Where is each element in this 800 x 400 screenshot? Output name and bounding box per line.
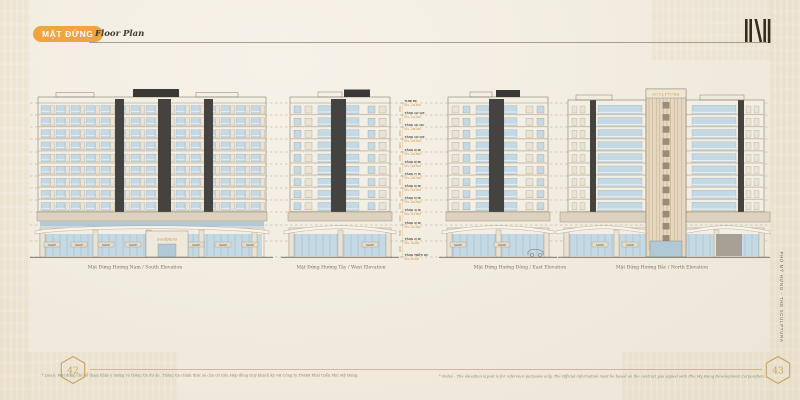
shop-sign: SHOP [498,243,506,247]
page-number-right-value: 43 [772,367,784,377]
floor-dimension: 3200 [398,166,402,173]
brochure-page: SHOPSHOPSHOPSHOPSHOPSHOPSHOPSculptura SH… [0,0,800,400]
floor-level-ffl: FFL ±0.000 [405,257,420,261]
floor-dimension: 3200 [398,117,402,124]
footnote-vietnamese: * Lưu ý: Mặt đứng chỉ để tham khảo ý tưở… [42,373,359,378]
elevation-west-drawing: SHOP [281,90,399,258]
floor-level-name: TẦNG TRỆT/ GF [405,252,429,257]
shop-sign: SHOP [246,243,254,247]
floor-dimension: 3200 [398,105,402,112]
floor-dimension: 3200 [398,178,402,185]
entrance-sign: Sculptura [157,237,177,242]
floor-dimension: 6000 [398,245,402,252]
floor-level-labels: TUM/ RFFFL +44.600TẦNG 12/ 12FFFL +41.40… [398,99,429,261]
shop-sign: SHOP [75,243,83,247]
floor-level-ffl: FFL +35.000 [405,139,422,143]
floor-level-ffl: FFL +41.400 [405,115,422,119]
floor-dimension: 3200 [398,215,402,222]
floor-dimension: 3200 [398,190,402,197]
shop-sign: SHOP [129,243,137,247]
shop-sign: SHOP [48,243,56,247]
floor-dimension: 3200 [398,154,402,161]
caption-west-elevation: Mặt Đứng Hướng Tây / West Elevation [296,264,385,271]
caption-north-elevation: Mặt Đứng Hướng Bắc / North Elevation [616,264,708,271]
floor-level-ffl: FFL +19.000 [405,200,422,204]
shop-sign: SHOP [596,243,604,247]
floor-level-ffl: FFL +22.200 [405,188,422,192]
caption-east-elevation: Mặt Đứng Hướng Đông / East Elevation [474,264,566,271]
floor-dimension: 3200 [398,202,402,209]
footnote-english: * Notes : The elevation layout is for re… [439,375,765,379]
elevation-scene: SHOPSHOPSHOPSHOPSHOPSHOPSHOPSculptura SH… [0,0,800,400]
floor-dimension: 5000 [398,229,402,236]
sculptura-logo-icon [745,19,770,43]
floor-level-ffl: FFL +6.000 [405,241,420,245]
shop-sign: SHOP [366,243,374,247]
floor-dimension: 3200 [398,142,402,149]
shop-sign: SHOP [626,243,634,247]
caption-south-elevation: Mặt Đứng Hướng Nam / South Elevation [88,264,183,271]
shop-sign: SHOP [192,243,200,247]
floor-level-ffl: FFL +44.600 [405,103,422,107]
shop-sign: SHOP [102,243,110,247]
shop-sign: SHOP [454,243,462,247]
header-rule [89,42,768,43]
floor-level-ffl: FFL +28.600 [405,164,422,168]
section-subtitle: Floor Plan [95,29,144,39]
floor-level-ffl: FFL +38.200 [405,127,422,131]
floor-level-ffl: FFL +11.000 [405,225,422,229]
floor-level-ffl: FFL +31.800 [405,152,422,156]
elevation-south-drawing: SHOPSHOPSHOPSHOPSHOPSHOPSHOPSculptura [30,89,273,257]
tower-sign: SCULPTURA [652,93,679,97]
elevation-east-drawing: SHOPSHOP [439,90,557,257]
elevation-north-drawing: SHOPSHOPSCULPTURA [556,89,770,257]
page-number-left: 42 [61,357,84,384]
page-number-left-value: 42 [67,367,78,377]
floor-level-ffl: FFL +25.400 [405,176,422,180]
page-number-right: 43 [766,357,789,384]
floor-level-ffl: FFL +15.800 [405,212,422,216]
shop-sign: SHOP [219,243,227,247]
side-brand-text: PHÚ MỸ HƯNG - THE SCULPTURA [779,251,784,342]
floor-dimension: 3200 [398,129,402,136]
section-badge: MẶT ĐỨNG [33,26,103,42]
